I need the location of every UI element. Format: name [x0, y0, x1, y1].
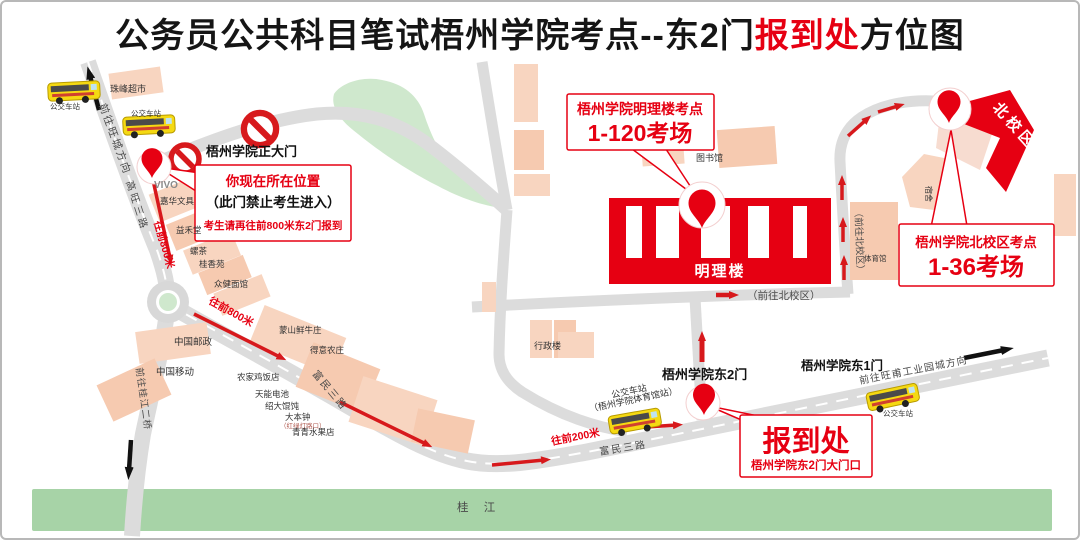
building-block — [108, 67, 163, 100]
label-farm-chicken: 农家鸡饭店 — [237, 372, 280, 382]
label-mengshan-beef: 蒙山鲜牛庄 — [279, 325, 322, 335]
river-area — [32, 489, 1052, 531]
label-east-gate2: 梧州学院东2门 — [662, 367, 747, 382]
map-frame: 公务员公共科目笔试梧州学院考点--东2门报到处方位图 — [0, 0, 1080, 540]
roundabout — [147, 281, 189, 323]
callout-minglilou-line2: 1-120考场 — [588, 120, 693, 146]
label-stationery: 嘉华文具 — [160, 196, 195, 206]
label-main-gate: 梧州学院正大门 — [206, 144, 297, 159]
map-canvas: 你现在所在位置 （此门禁止考生进入） 考生请再往前800米东2门报到 梧州学院明… — [2, 2, 1080, 540]
label-yihetang: 益禾堂 — [176, 225, 202, 235]
page-title: 公务员公共科目笔试梧州学院考点--东2门报到处方位图 — [2, 8, 1078, 57]
label-library: 图书馆 — [696, 152, 723, 163]
callout-registration-line1: 报到处 — [762, 425, 849, 458]
title-highlight: 报到处 — [755, 17, 860, 55]
label-dabenzhong: 大本钟 — [285, 412, 311, 422]
label-fruit-shop: 青青水果店 — [292, 427, 335, 437]
label-bus-stop-4: 公交车站 — [883, 408, 913, 418]
building-block-library — [717, 126, 778, 168]
label-bus-stop-2: 公交车站 — [131, 108, 161, 118]
callout-north-campus-line2: 1-36考场 — [928, 254, 1024, 281]
building-block — [1054, 174, 1076, 236]
label-tianneng-battery: 天能电池 — [255, 389, 290, 399]
label-guixiangyuan: 桂香苑 — [199, 259, 225, 269]
label-admin: 行政楼 — [534, 340, 561, 351]
label-china-post: 中国邮政 — [174, 336, 213, 348]
label-east-gate1: 梧州学院东1门 — [801, 358, 883, 373]
label-gym: 体育馆 — [864, 253, 887, 263]
building-block — [514, 64, 538, 122]
label-dorm: 宿舍 — [924, 186, 934, 202]
label-bus-stop-1: 公交车站 — [50, 101, 80, 111]
building-block — [482, 282, 496, 312]
label-noodle-house: 众健面馆 — [214, 279, 248, 289]
label-river: 桂 江 — [457, 500, 501, 514]
label-to-north-campus-v: （前往北校区） — [852, 208, 866, 275]
callout-current-location-line2: （此门禁止考生进入） — [206, 194, 341, 210]
callout-registration-line2: 梧州学院东2门大门口 — [751, 458, 861, 472]
label-vivo: VIVO — [154, 180, 178, 191]
label-minglilou: 明理楼 — [694, 262, 745, 280]
label-supermarket: 珠峰超市 — [110, 83, 146, 94]
title-part2: 方位图 — [860, 17, 965, 55]
label-wonton: 绍大馄饨 — [265, 401, 300, 411]
building-block — [558, 332, 594, 358]
building-block — [514, 174, 550, 196]
label-to-north-campus-h: （前往北校区） — [747, 289, 821, 302]
label-luocha: 螺茶 — [190, 246, 208, 256]
callout-north-campus-line1: 梧州学院北校区考点 — [915, 234, 1037, 250]
label-china-mobile: 中国移动 — [156, 366, 194, 378]
label-wangcheng-dir: 前往旺城方向 — [96, 102, 134, 177]
callout-current-location-line3: 考生请再往前800米东2门报到 — [204, 219, 343, 232]
building-block-admin — [530, 320, 552, 358]
building-block — [514, 130, 544, 170]
no-entry-icon — [244, 113, 276, 145]
callout-current-location-line1: 你现在所在位置 — [225, 173, 321, 189]
label-deyi-farm: 得意农庄 — [310, 345, 345, 355]
title-part1: 公务员公共科目笔试梧州学院考点--东2门 — [115, 17, 755, 55]
bus-icon — [123, 115, 176, 139]
callout-minglilou-line1: 梧州学院明理楼考点 — [577, 101, 703, 117]
